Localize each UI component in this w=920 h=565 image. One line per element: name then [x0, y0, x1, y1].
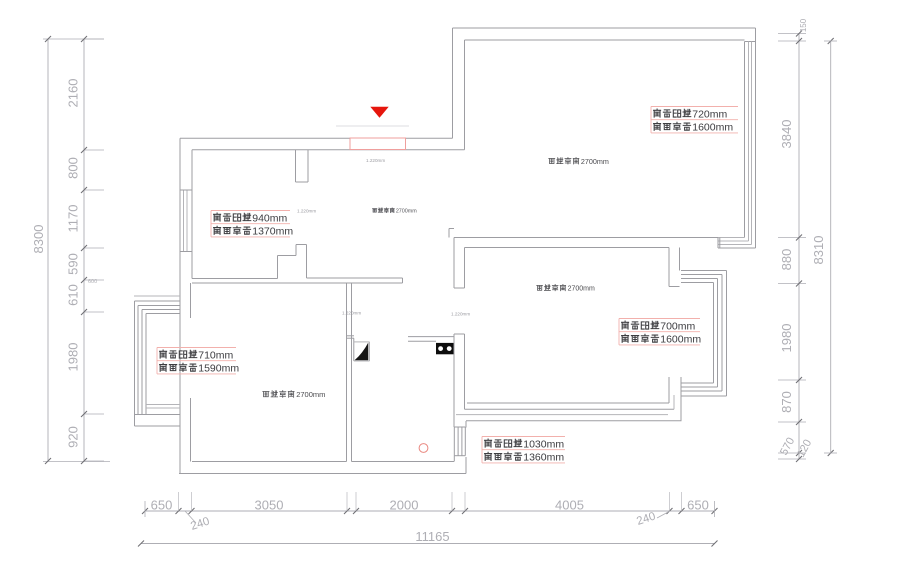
- svg-text:3840: 3840: [779, 120, 794, 149]
- svg-text:2700mm: 2700mm: [581, 157, 609, 166]
- svg-text:1.220mm: 1.220mm: [366, 158, 385, 163]
- svg-text:1590mm: 1590mm: [198, 363, 239, 375]
- svg-text:2700mm: 2700mm: [296, 390, 325, 399]
- svg-text:1370mm: 1370mm: [252, 226, 293, 238]
- svg-text:610: 610: [66, 284, 81, 306]
- svg-text:8310: 8310: [811, 236, 826, 265]
- svg-text:650: 650: [151, 498, 173, 513]
- svg-text:1030mm: 1030mm: [523, 438, 564, 450]
- svg-text:920: 920: [66, 426, 81, 448]
- svg-text:150: 150: [799, 18, 808, 32]
- svg-text:2000: 2000: [390, 498, 419, 513]
- svg-text:710mm: 710mm: [198, 349, 233, 361]
- svg-text:1.220mm: 1.220mm: [342, 311, 361, 316]
- svg-text:8300: 8300: [31, 225, 46, 254]
- svg-text:880: 880: [779, 249, 794, 271]
- svg-text:1600mm: 1600mm: [660, 334, 701, 346]
- svg-text:1600mm: 1600mm: [692, 122, 733, 134]
- svg-text:590: 590: [66, 253, 81, 275]
- svg-text:2700mm: 2700mm: [396, 208, 417, 214]
- svg-text:700mm: 700mm: [660, 320, 695, 332]
- svg-text:800: 800: [66, 157, 81, 179]
- svg-text:600: 600: [88, 279, 97, 285]
- svg-text:11165: 11165: [415, 529, 449, 544]
- svg-text:650: 650: [687, 498, 709, 513]
- svg-text:720mm: 720mm: [692, 108, 727, 120]
- svg-text:1360mm: 1360mm: [523, 452, 564, 464]
- svg-text:2160: 2160: [66, 79, 81, 108]
- svg-text:870: 870: [779, 391, 794, 413]
- svg-text:2700mm: 2700mm: [568, 286, 595, 293]
- svg-text:940mm: 940mm: [252, 212, 287, 224]
- svg-text:3050: 3050: [255, 498, 284, 513]
- svg-text:1170: 1170: [66, 205, 81, 233]
- svg-text:1.220mm: 1.220mm: [297, 209, 316, 214]
- svg-text:1980: 1980: [779, 324, 794, 353]
- svg-text:1980: 1980: [66, 343, 81, 372]
- svg-text:4005: 4005: [555, 498, 584, 513]
- svg-text:1.220mm: 1.220mm: [451, 312, 470, 317]
